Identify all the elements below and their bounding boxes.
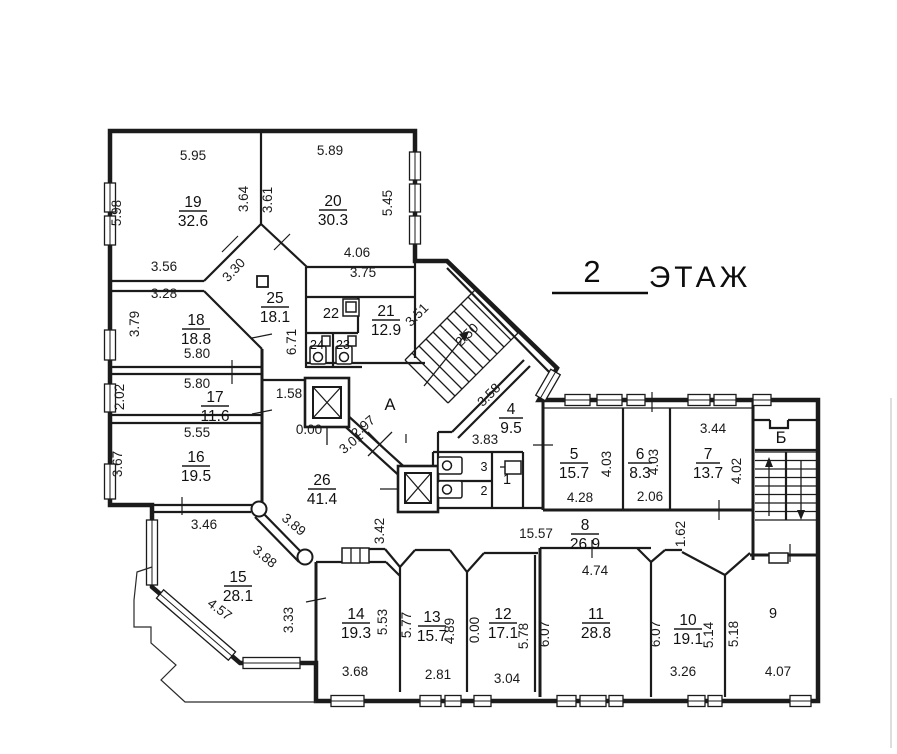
dim-r11-top: 4.74 <box>582 563 609 578</box>
svg-text:4: 4 <box>507 401 516 418</box>
room-label-24: 24 <box>310 338 324 352</box>
dim-hall25-right: 3.75 <box>350 265 376 280</box>
dim-r20-right: 5.45 <box>380 190 395 216</box>
dim-lift-gap: 1.58 <box>276 386 302 401</box>
svg-text:32.6: 32.6 <box>178 213 208 230</box>
svg-text:16: 16 <box>187 449 204 466</box>
dim-r20-bottom: 4.06 <box>344 245 370 260</box>
svg-text:25: 25 <box>266 290 283 307</box>
dim-r19-right: 3.64 <box>236 185 251 212</box>
floor-title-word: ЭТАЖ <box>649 261 752 294</box>
niche-room9 <box>769 553 788 563</box>
svg-text:11: 11 <box>588 606 604 623</box>
dim-r13-bottom: 2.81 <box>425 667 451 682</box>
svg-text:12.9: 12.9 <box>371 322 401 339</box>
svg-text:30.3: 30.3 <box>318 212 348 229</box>
svg-text:41.4: 41.4 <box>307 491 338 508</box>
svg-text:7: 7 <box>704 446 713 463</box>
dim-r6-bottom: 2.06 <box>637 489 663 504</box>
room-label-9: 9 <box>769 606 777 622</box>
dim-r9-left: 5.18 <box>726 621 741 647</box>
svg-text:12: 12 <box>494 606 511 623</box>
room-label-23: 23 <box>336 338 350 352</box>
svg-text:17: 17 <box>206 389 223 406</box>
svg-text:26: 26 <box>313 472 330 489</box>
svg-text:21: 21 <box>377 303 394 320</box>
dim-r5-right: 4.03 <box>599 451 614 477</box>
svg-text:18.1: 18.1 <box>260 309 290 326</box>
dim-r10-right: 5.14 <box>701 621 716 648</box>
room-label-2: 2 <box>481 484 488 498</box>
room-label-1: 1 <box>503 472 511 488</box>
dim-hall25-left: 6.71 <box>284 329 299 355</box>
toilet-3-fixture <box>438 457 462 474</box>
dim-r14-right: 5.53 <box>375 609 390 635</box>
toilet-2-fixture <box>438 481 462 498</box>
dim-r7-right: 4.02 <box>729 458 744 484</box>
dim-corridor-len: 15.57 <box>519 526 553 541</box>
svg-text:10: 10 <box>679 612 697 629</box>
dim-r14-bottom: 3.68 <box>342 664 368 679</box>
svg-text:9.5: 9.5 <box>500 420 522 437</box>
svg-text:6: 6 <box>636 446 645 463</box>
vent-shaft <box>342 548 369 563</box>
dim-r11-right: 6.07 <box>648 621 663 647</box>
dim-r9-bottom: 4.07 <box>765 664 791 679</box>
dim-r18-left: 3.79 <box>127 311 142 337</box>
dim-wc-top: 3.83 <box>472 432 498 447</box>
svg-text:15: 15 <box>229 569 246 586</box>
svg-text:13.7: 13.7 <box>693 465 723 482</box>
svg-text:17.1: 17.1 <box>488 625 518 642</box>
stairwell-letter-b: Б <box>776 429 787 447</box>
dim-r17-top: 5.80 <box>184 376 210 391</box>
dim-r18-bottom: 5.80 <box>184 346 210 361</box>
svg-text:18: 18 <box>187 312 204 329</box>
dim-corridor-w: 1.62 <box>673 521 688 547</box>
svg-text:19: 19 <box>184 194 201 211</box>
dim-r13-left: 5.77 <box>399 612 414 638</box>
dim-r16-left: 3.67 <box>110 451 125 477</box>
dim-r14-top: 3.42 <box>372 518 387 544</box>
column-2 <box>298 550 313 565</box>
dim-r20-top: 5.89 <box>317 143 343 158</box>
column-1 <box>252 502 267 517</box>
svg-text:26.9: 26.9 <box>570 536 600 553</box>
dim-r13-right: 4.89 <box>442 618 457 644</box>
dim-r15-right: 3.33 <box>281 607 296 633</box>
dim-r6-right: 4.03 <box>646 449 661 475</box>
svg-text:14: 14 <box>347 606 365 623</box>
svg-text:28.1: 28.1 <box>223 588 253 605</box>
dim-r10-bottom: 3.26 <box>670 664 696 679</box>
dim-r5-bottom: 4.28 <box>567 490 593 505</box>
dim-r19-bottom: 3.56 <box>151 259 177 274</box>
column-square <box>257 276 268 287</box>
dim-r20-left: 3.61 <box>260 187 275 213</box>
floor-plan-svg: 2 ЭТАЖ 1932.6 2030.3 2518.1 2112.9 1818.… <box>0 0 897 754</box>
svg-text:19.5: 19.5 <box>181 468 211 485</box>
hall-letter-a: А <box>384 396 395 414</box>
dim-r19-left: 5.98 <box>109 200 124 226</box>
svg-text:15.7: 15.7 <box>559 465 589 482</box>
room-label-22: 22 <box>323 306 339 322</box>
floor-title-number: 2 <box>583 254 600 289</box>
dim-level-b: 0.00 <box>467 617 482 643</box>
dim-r12-right: 5.78 <box>516 623 531 649</box>
svg-text:20: 20 <box>324 193 342 210</box>
room-label-3: 3 <box>481 460 488 474</box>
svg-text:19.3: 19.3 <box>341 625 371 642</box>
dim-r19-top: 5.95 <box>180 148 206 163</box>
svg-text:8: 8 <box>581 517 590 534</box>
sink-room22-icon <box>343 299 359 316</box>
svg-text:28.8: 28.8 <box>581 625 611 642</box>
svg-text:5: 5 <box>570 446 579 463</box>
svg-text:11.6: 11.6 <box>200 408 229 425</box>
dim-r15-top: 3.46 <box>191 517 217 532</box>
dim-r17-left: 2.02 <box>112 384 127 410</box>
floor-plan-page: 2 ЭТАЖ 1932.6 2030.3 2518.1 2112.9 1818.… <box>0 0 897 754</box>
svg-text:13: 13 <box>423 609 440 626</box>
mark-i: I <box>404 432 407 446</box>
dim-r18-top: 3.28 <box>151 286 177 301</box>
svg-text:19.1: 19.1 <box>673 631 703 648</box>
dim-level-a: 0.00 <box>296 422 322 437</box>
dim-r7-top: 3.44 <box>700 421 727 436</box>
dim-r11-left: 6.07 <box>537 621 552 647</box>
dim-r16-top: 5.55 <box>184 425 210 440</box>
dim-r12-bottom: 3.04 <box>494 671 521 686</box>
